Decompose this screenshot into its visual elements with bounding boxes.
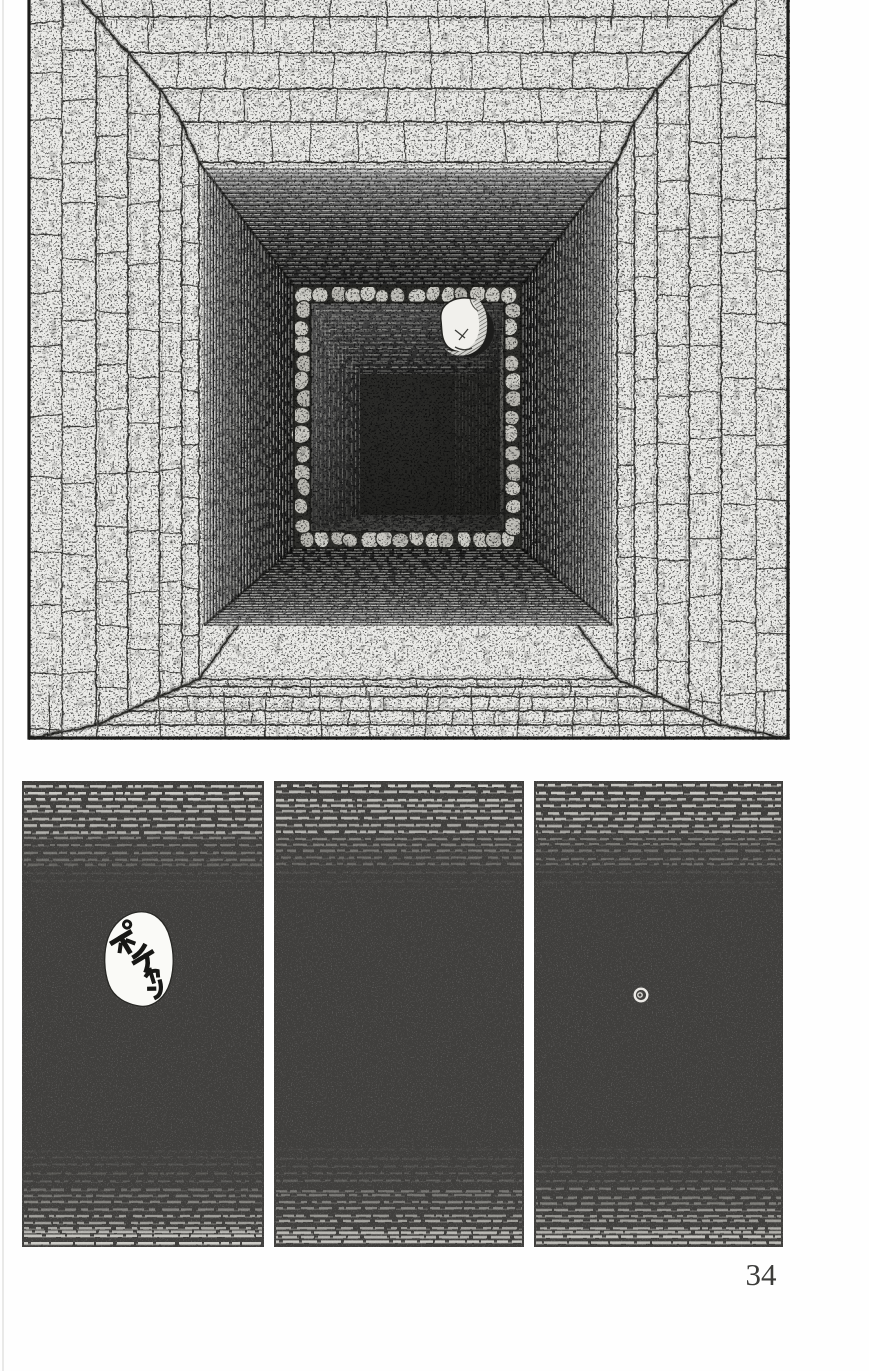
svg-text:34: 34 [746, 1257, 778, 1292]
